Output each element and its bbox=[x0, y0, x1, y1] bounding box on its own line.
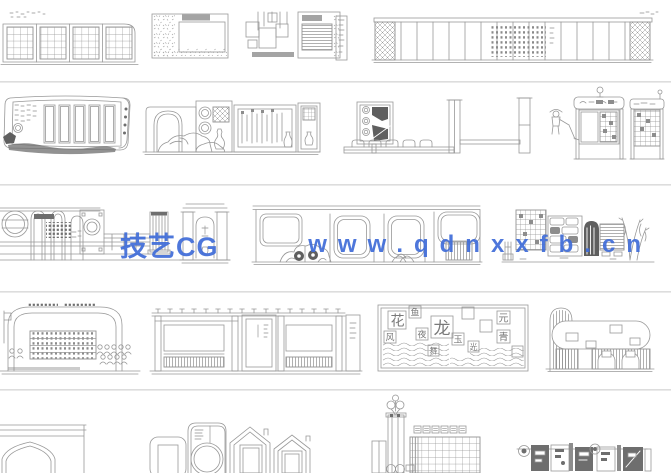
calligraphy-char: 元 bbox=[499, 314, 509, 325]
calligraphy-char: 青 bbox=[499, 331, 509, 344]
catalog-row-2 bbox=[0, 81, 671, 184]
drawing-texture-wall-reeds bbox=[502, 210, 654, 262]
catalog-row-4: 花 鱼 龙 夜 风 玉 元 青 光 舞 bbox=[0, 291, 671, 389]
catalog-row-1 bbox=[0, 0, 671, 81]
calligraphy-char: 风 bbox=[386, 333, 395, 344]
drawing-display-frames bbox=[150, 423, 310, 473]
drawing-long-inscription-wall bbox=[372, 12, 658, 63]
calligraphy-char: 花 bbox=[391, 314, 405, 330]
drawing-garden-wall-arch bbox=[143, 101, 320, 155]
calligraphy-char: 龙 bbox=[434, 319, 451, 339]
drawing-calligraphy-wall: 花 鱼 龙 夜 风 玉 元 青 光 舞 bbox=[378, 305, 528, 371]
cad-elevation-catalog: 花 鱼 龙 夜 风 玉 元 青 光 舞 bbox=[0, 0, 671, 473]
catalog-row-3 bbox=[0, 184, 671, 291]
drawing-panel-strip bbox=[517, 443, 651, 471]
drawing-lattice-stands-farmer bbox=[550, 87, 664, 159]
drawing-lattice-screen-wall bbox=[1, 12, 138, 65]
drawing-corridor-pavilion bbox=[150, 309, 362, 374]
calligraphy-char: 玉 bbox=[454, 335, 463, 346]
drawing-shield-wall bbox=[0, 425, 86, 473]
drawing-stage-wall bbox=[0, 302, 140, 374]
drawing-signboard-benches bbox=[344, 98, 532, 153]
drawing-pill-sign bbox=[546, 308, 654, 372]
drawing-tower-grid-building bbox=[372, 395, 480, 473]
calligraphy-char: 光 bbox=[470, 342, 478, 352]
drawing-cloud-frame-wall bbox=[252, 206, 482, 265]
calligraphy-char: 夜 bbox=[418, 329, 427, 341]
drawing-planter-panel bbox=[152, 12, 340, 58]
calligraphy-char: 鱼 bbox=[411, 307, 420, 319]
drawing-scroll-culture-wall bbox=[3, 96, 130, 154]
catalog-row-5 bbox=[0, 389, 671, 473]
calligraphy-char: 舞 bbox=[430, 346, 438, 356]
drawing-heritage-wall-composite bbox=[0, 204, 230, 263]
